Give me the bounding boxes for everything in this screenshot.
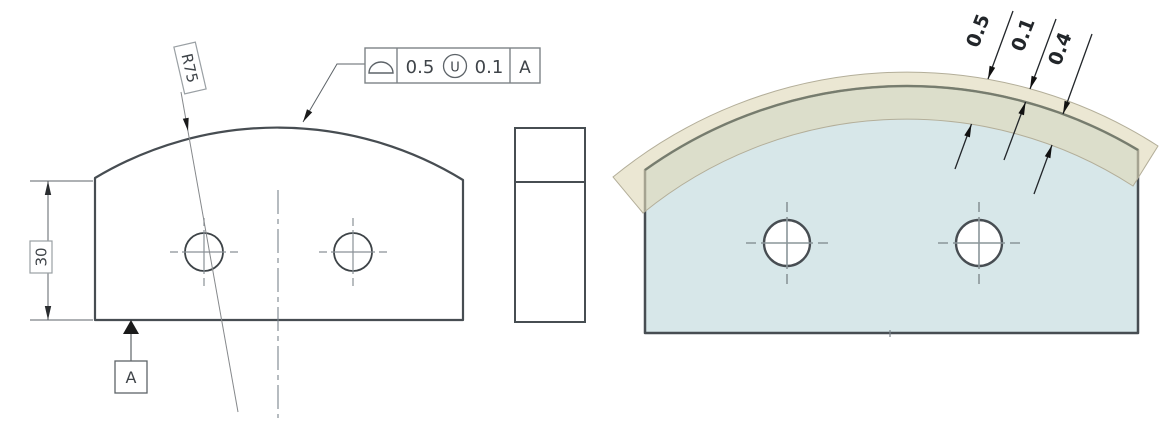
height-label-box: 30 [30,241,52,273]
dim-inside-label: 0.4 [1044,29,1077,68]
feature-control-frame: 0.5 U 0.1 A [303,48,540,122]
dim-total-label: 0.5 [962,11,995,50]
dim-outside-label: 0.1 [1007,15,1040,54]
drawing-svg: R75 30 A 0.5 U 0.1 [0,0,1169,421]
height-label: 30 [33,247,51,266]
radius-label-box: R75 [174,42,206,94]
datum-label: A [126,368,137,387]
side-view [515,128,585,322]
fcf-modifier: U [450,61,460,76]
radius-arrow [183,118,189,131]
front-part-outline [95,128,463,320]
height-arrow-top [45,181,51,195]
fcf-outer-zone-value: 0.1 [475,57,504,78]
front-view: R75 30 A 0.5 U 0.1 [30,42,540,418]
fcf-leader-arrow [303,109,312,122]
height-arrow-bottom [45,306,51,320]
datum-triangle [123,320,139,334]
dim-outside-arrow-down [1030,76,1037,89]
side-view-outline [515,128,585,322]
fcf-datum-reference: A [519,58,531,78]
iso-view: 0.5 0.1 0.4 [613,11,1158,337]
dim-total-arrow-down [988,66,995,79]
fcf-leader-line [303,64,365,122]
technical-drawing-canvas: R75 30 A 0.5 U 0.1 [0,0,1169,421]
fcf-tolerance-value: 0.5 [406,57,435,78]
